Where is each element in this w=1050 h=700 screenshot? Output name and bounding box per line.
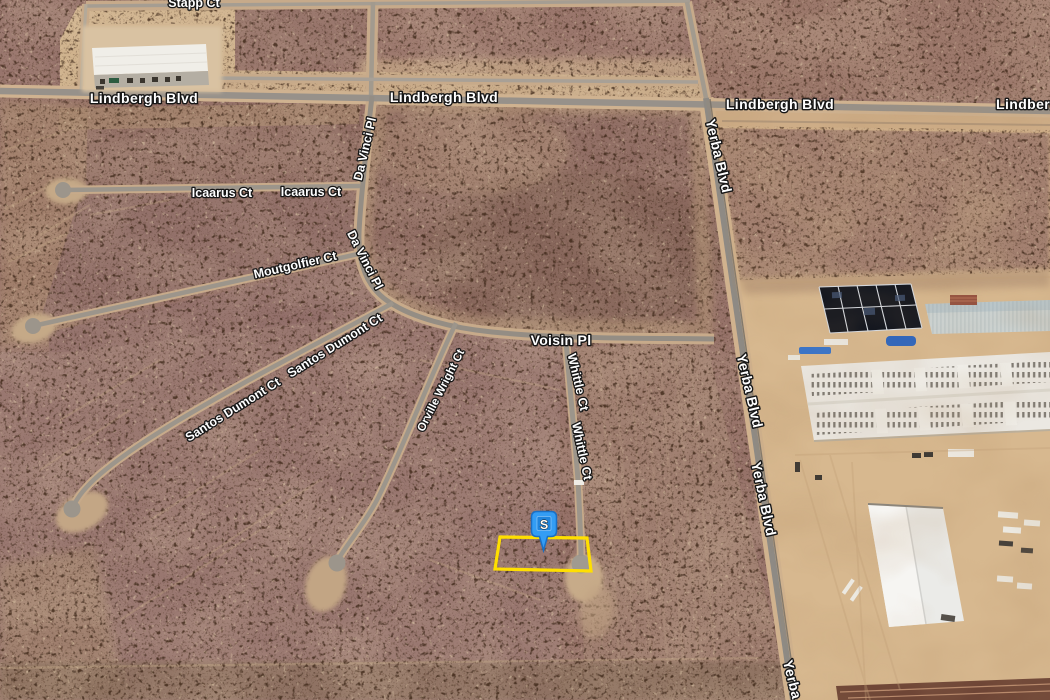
svg-text:Lindbergh Blvd: Lindbergh Blvd [90,90,198,106]
svg-text:Stapp Ct: Stapp Ct [168,0,220,10]
svg-text:Voisin Pl: Voisin Pl [531,332,592,348]
svg-text:Lindbergh Blvd: Lindbergh Blvd [996,96,1050,112]
svg-text:Lindbergh Blvd: Lindbergh Blvd [390,89,498,105]
svg-text:S: S [540,518,548,532]
svg-text:Icaarus Ct: Icaarus Ct [281,185,342,199]
svg-text:Icaarus Ct: Icaarus Ct [192,186,253,200]
svg-text:Lindbergh Blvd: Lindbergh Blvd [726,96,834,112]
